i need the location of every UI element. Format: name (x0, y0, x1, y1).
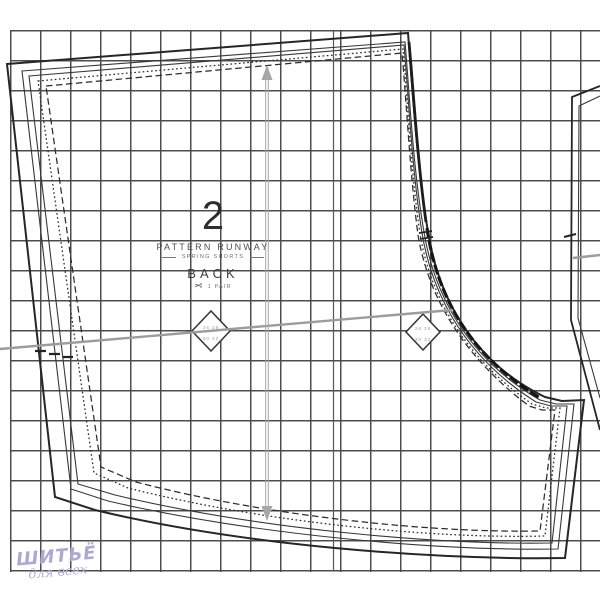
cutting-instruction-row: ✂ 1 PAIR (113, 282, 313, 292)
dotted-stitch-line (38, 49, 560, 536)
dashed-size-line (46, 53, 555, 531)
piece-name: BACK (113, 266, 313, 281)
piece-number: 2 (113, 194, 313, 238)
scanned-sewing-pattern-page: { "pattern_label": { "piece_number": "2"… (0, 0, 600, 600)
crotch-curve-emphasis (427, 228, 540, 398)
outer-cut-line (7, 33, 584, 558)
notch-diamonds: 26 28 30 32 26 28 30 32 (192, 311, 440, 351)
brand-name: PATTERN RUNWAY (113, 242, 313, 252)
diamond-left-sizes-row2: 30 32 (203, 336, 219, 341)
divider-dash-left (162, 257, 176, 258)
diamond-right-sizes-row1: 26 28 (415, 326, 431, 331)
pattern-drawing: 26 28 30 32 26 28 30 32 (0, 0, 600, 600)
scissors-icon: ✂ (194, 282, 202, 292)
cutting-instruction: 1 PAIR (208, 284, 232, 290)
right-piece-inner-line (578, 96, 600, 398)
gray-balance-line-right-piece (573, 255, 600, 258)
garment-row: SPRING SHORTS (113, 254, 313, 260)
notch-diamond-right (406, 314, 440, 350)
garment-name: SPRING SHORTS (182, 254, 244, 260)
diamond-right-sizes-row2: 30 32 (415, 337, 431, 342)
main-pattern-piece (7, 33, 584, 558)
divider-dash-right (250, 257, 264, 258)
gray-balance-line (0, 310, 452, 349)
pattern-label-block: 2 PATTERN RUNWAY SPRING SHORTS BACK ✂ 1 … (113, 194, 313, 292)
inner-size-line-1 (22, 42, 574, 549)
inner-size-line-2 (29, 45, 567, 543)
grainline-arrow-icon (262, 65, 273, 521)
